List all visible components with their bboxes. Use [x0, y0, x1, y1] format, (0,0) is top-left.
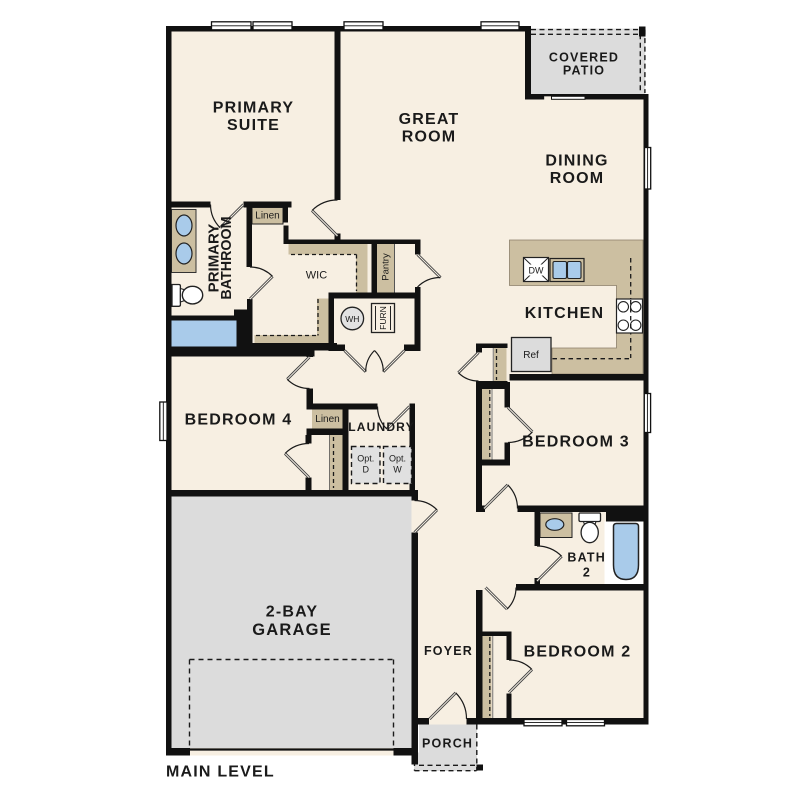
svg-text:WH: WH [345, 314, 359, 324]
svg-text:BATH: BATH [567, 551, 606, 565]
svg-text:Ref: Ref [523, 350, 539, 361]
svg-text:2: 2 [583, 566, 591, 580]
svg-text:WIC: WIC [306, 270, 327, 282]
svg-text:PATIO: PATIO [563, 64, 605, 78]
svg-text:GARAGE: GARAGE [252, 621, 332, 639]
svg-text:2-BAY: 2-BAY [266, 604, 319, 621]
svg-text:MAIN LEVEL: MAIN LEVEL [166, 764, 275, 781]
svg-text:ROOM: ROOM [550, 170, 605, 187]
svg-text:ROOM: ROOM [402, 129, 457, 146]
svg-text:Pantry: Pantry [381, 253, 392, 281]
svg-text:KITCHEN: KITCHEN [525, 305, 605, 322]
svg-text:FOYER: FOYER [424, 644, 473, 658]
svg-text:BEDROOM 4: BEDROOM 4 [185, 412, 293, 429]
svg-text:Linen: Linen [255, 211, 279, 222]
svg-text:BATHROOM: BATHROOM [219, 216, 235, 299]
svg-text:PORCH: PORCH [422, 737, 473, 751]
svg-text:LAUNDRY: LAUNDRY [348, 420, 415, 434]
svg-text:DINING: DINING [545, 153, 608, 170]
svg-text:FURN: FURN [378, 306, 388, 330]
svg-text:GREAT: GREAT [399, 111, 460, 128]
svg-text:PRIMARY: PRIMARY [213, 100, 295, 117]
svg-text:W: W [393, 465, 402, 475]
svg-text:D: D [363, 465, 370, 475]
svg-text:COVERED: COVERED [549, 51, 619, 65]
svg-text:Opt.: Opt. [357, 454, 374, 464]
svg-text:SUITE: SUITE [227, 117, 280, 134]
svg-text:DW: DW [529, 266, 544, 276]
svg-text:BEDROOM 3: BEDROOM 3 [522, 434, 630, 451]
svg-text:Linen: Linen [315, 414, 339, 425]
svg-text:Opt.: Opt. [389, 454, 406, 464]
svg-text:BEDROOM 2: BEDROOM 2 [524, 644, 632, 661]
